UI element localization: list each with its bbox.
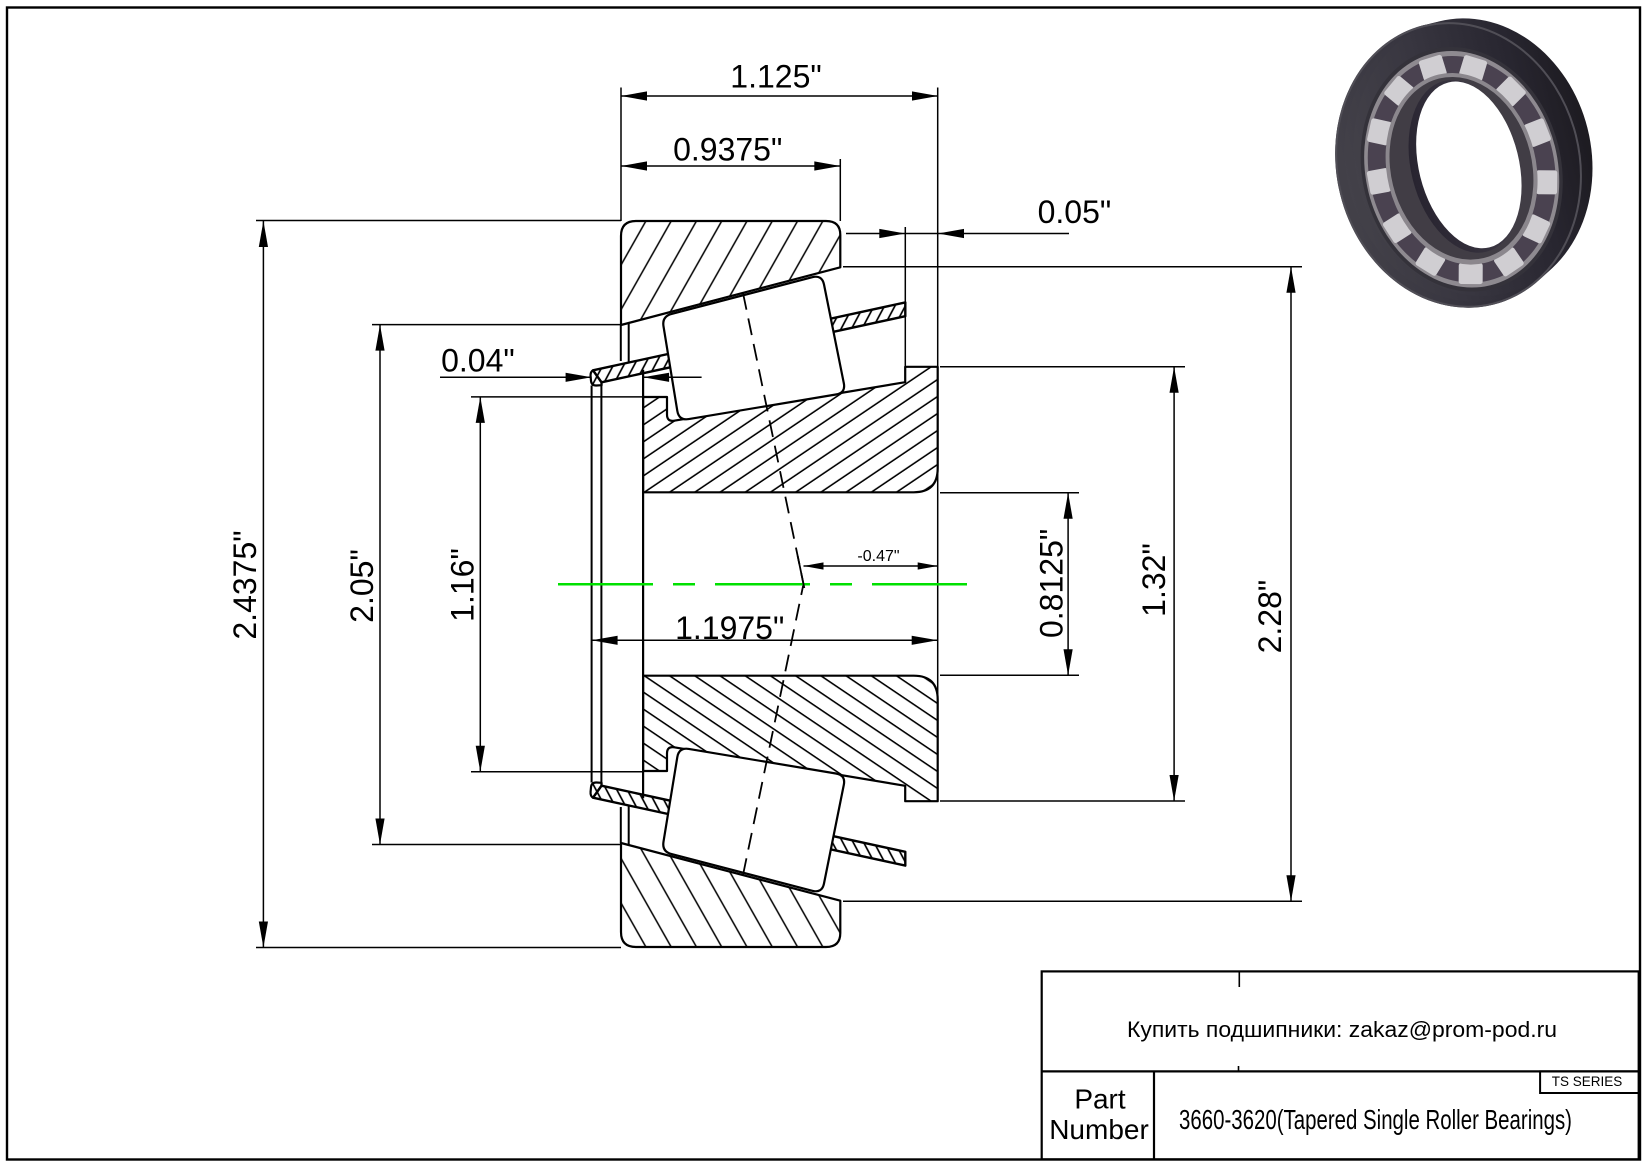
svg-text:-0.47": -0.47"	[857, 548, 899, 565]
svg-text:Part: Part	[1074, 1083, 1126, 1114]
svg-text:0.04": 0.04"	[441, 343, 515, 379]
svg-text:2.4375": 2.4375"	[227, 530, 263, 639]
svg-text:1.1975": 1.1975"	[675, 610, 784, 646]
svg-text:2.05": 2.05"	[344, 549, 380, 623]
svg-text:0.8125": 0.8125"	[1034, 529, 1070, 638]
svg-text:0.05": 0.05"	[1038, 194, 1112, 230]
svg-text:0.9375": 0.9375"	[673, 132, 782, 168]
svg-text:1.32": 1.32"	[1136, 543, 1172, 617]
svg-text:Купить подшипники: zakaz@prom-: Купить подшипники: zakaz@prom-pod.ru	[1127, 1017, 1557, 1042]
svg-text:Number: Number	[1049, 1114, 1149, 1145]
svg-text:1.16": 1.16"	[444, 548, 480, 622]
svg-text:2.28": 2.28"	[1252, 580, 1288, 654]
svg-text:TS SERIES: TS SERIES	[1552, 1074, 1623, 1089]
svg-text:1.125": 1.125"	[730, 59, 821, 95]
svg-text:3660-3620(Tapered Single Rolle: 3660-3620(Tapered Single Roller Bearings…	[1179, 1104, 1572, 1135]
